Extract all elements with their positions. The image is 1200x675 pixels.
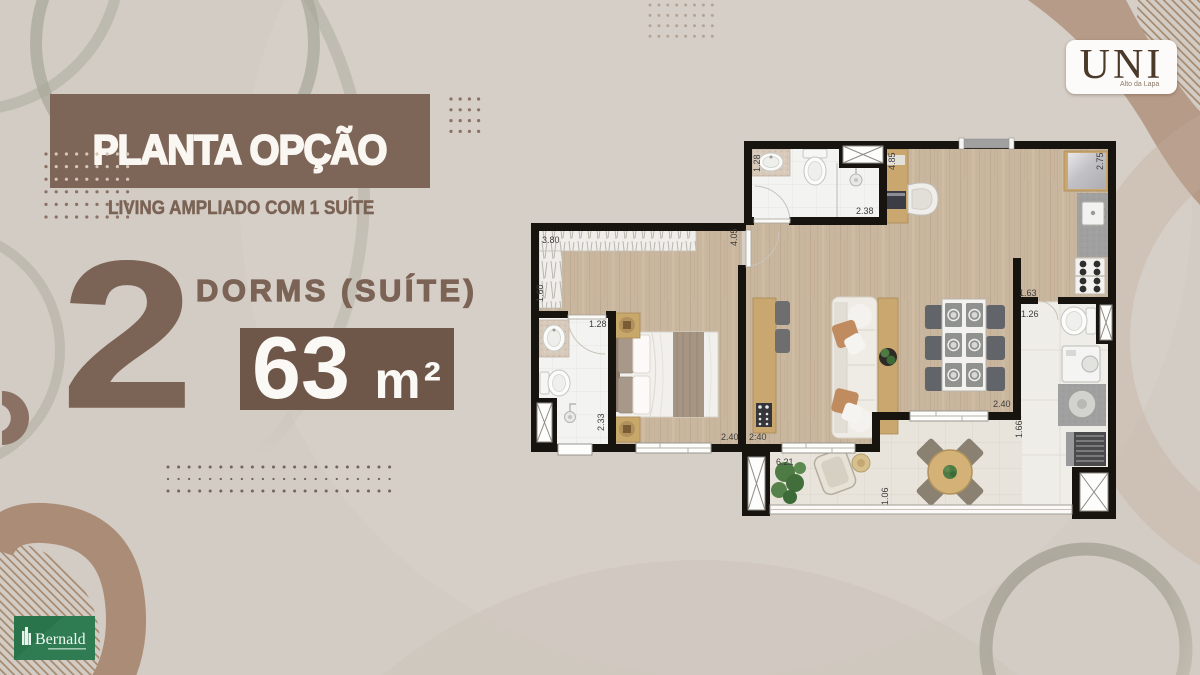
svg-text:4.85: 4.85 — [887, 152, 897, 170]
svg-text:2:40: 2:40 — [749, 432, 767, 442]
svg-text:6.21: 6.21 — [776, 457, 794, 467]
svg-text:2.40: 2.40 — [993, 399, 1011, 409]
svg-text:1.06: 1.06 — [880, 487, 890, 505]
svg-text:2.33: 2.33 — [596, 413, 606, 431]
svg-text:1.66: 1.66 — [1014, 420, 1024, 438]
svg-text:2.75: 2.75 — [1095, 152, 1105, 170]
svg-text:1.28: 1.28 — [589, 319, 607, 329]
svg-text:4.05: 4.05 — [729, 228, 739, 246]
svg-text:2.40: 2.40 — [721, 432, 739, 442]
svg-text:3.80: 3.80 — [542, 235, 560, 245]
svg-text:1.26: 1.26 — [1021, 309, 1039, 319]
svg-text:2.38: 2.38 — [856, 206, 874, 216]
svg-text:1.63: 1.63 — [1019, 288, 1037, 298]
svg-text:1.28: 1.28 — [752, 154, 762, 172]
svg-text:1.60: 1.60 — [535, 284, 545, 302]
